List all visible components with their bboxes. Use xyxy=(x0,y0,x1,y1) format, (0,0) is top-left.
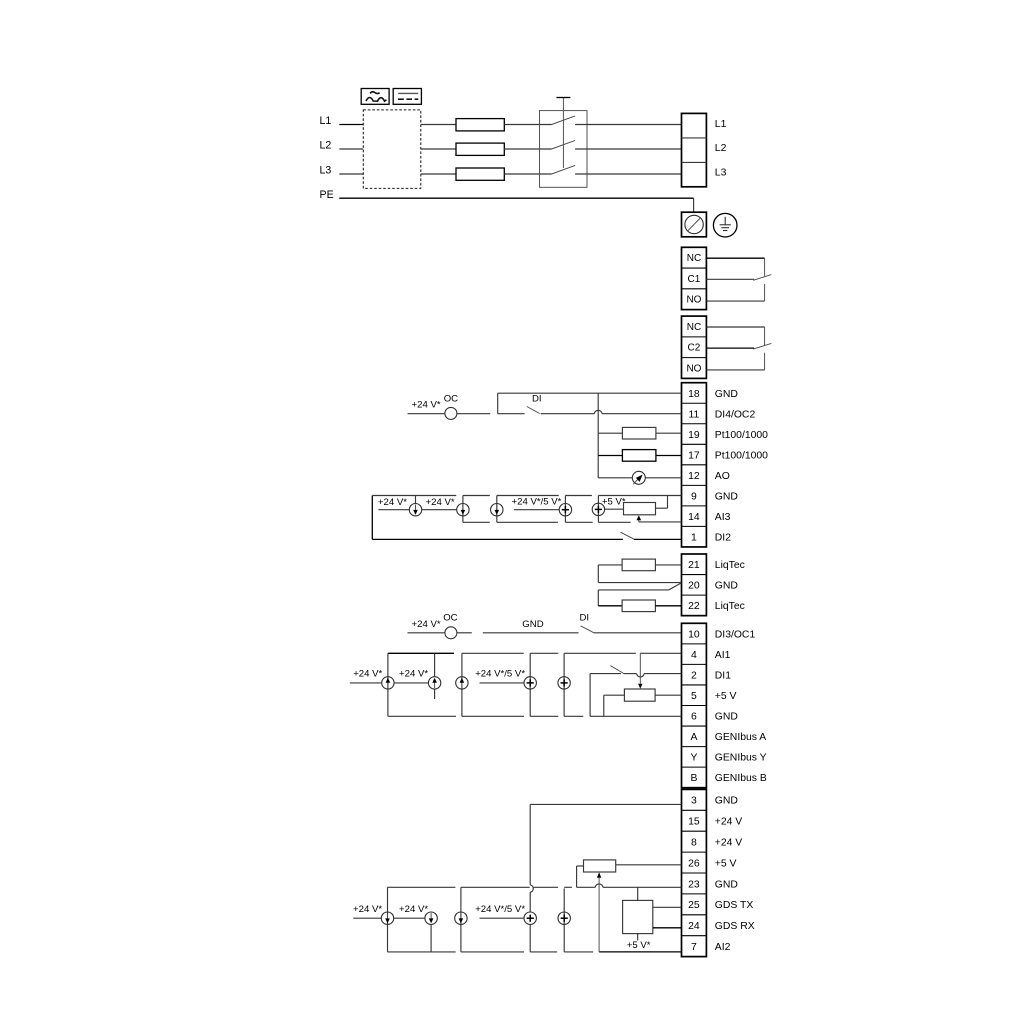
svg-text:+5 V: +5 V xyxy=(715,858,737,869)
svg-text:B: B xyxy=(690,773,697,784)
svg-text:+24 V*: +24 V* xyxy=(399,669,428,680)
svg-text:GND: GND xyxy=(715,581,738,592)
svg-text:DI2: DI2 xyxy=(715,532,731,543)
svg-text:6: 6 xyxy=(691,712,697,723)
svg-text:LiqTec: LiqTec xyxy=(715,560,745,571)
svg-text:8: 8 xyxy=(691,837,697,848)
svg-text:+5 V: +5 V xyxy=(715,691,737,702)
svg-text:GND: GND xyxy=(522,619,543,630)
svg-text:GND: GND xyxy=(715,796,738,807)
svg-text:26: 26 xyxy=(688,858,700,869)
svg-text:1: 1 xyxy=(691,532,697,543)
svg-text:3: 3 xyxy=(691,796,697,807)
svg-text:DI4/OC2: DI4/OC2 xyxy=(715,409,756,420)
svg-text:+24 V*: +24 V* xyxy=(412,400,441,411)
svg-text:18: 18 xyxy=(688,389,700,400)
svg-text:24: 24 xyxy=(688,921,700,932)
svg-text:15: 15 xyxy=(688,817,700,828)
svg-text:NO: NO xyxy=(686,295,701,306)
svg-text:AI1: AI1 xyxy=(715,650,731,661)
svg-text:GND: GND xyxy=(715,389,738,400)
svg-text:L1: L1 xyxy=(320,115,332,127)
svg-text:25: 25 xyxy=(688,900,700,911)
svg-text:L3: L3 xyxy=(715,168,727,179)
svg-text:GDS RX: GDS RX xyxy=(715,921,755,932)
svg-text:+24 V*: +24 V* xyxy=(378,497,407,508)
svg-text:NO: NO xyxy=(686,364,701,375)
svg-text:+24 V*: +24 V* xyxy=(426,497,455,508)
svg-text:AI3: AI3 xyxy=(715,512,731,523)
svg-text:GENIbus A: GENIbus A xyxy=(715,732,766,743)
svg-text:L3: L3 xyxy=(320,165,332,177)
svg-text:4: 4 xyxy=(691,650,697,661)
svg-text:+24 V: +24 V xyxy=(715,837,743,848)
svg-text:DI: DI xyxy=(580,612,590,623)
svg-text:2: 2 xyxy=(691,670,697,681)
svg-text:+24 V*/5 V*: +24 V*/5 V* xyxy=(475,904,525,915)
svg-text:+5 V*: +5 V* xyxy=(627,940,651,951)
svg-text:Y: Y xyxy=(690,753,697,764)
svg-text:+24 V*: +24 V* xyxy=(353,904,382,915)
svg-text:11: 11 xyxy=(689,409,700,420)
svg-text:DI: DI xyxy=(532,393,542,404)
svg-text:GENIbus Y: GENIbus Y xyxy=(715,753,767,764)
svg-text:GND: GND xyxy=(715,712,738,723)
svg-text:20: 20 xyxy=(688,581,700,592)
svg-text:14: 14 xyxy=(688,512,700,523)
svg-text:Pt100/1000: Pt100/1000 xyxy=(715,450,768,461)
svg-text:+24 V*: +24 V* xyxy=(353,669,382,680)
svg-text:12: 12 xyxy=(688,471,700,482)
svg-text:+24 V*: +24 V* xyxy=(412,619,441,630)
svg-text:GND: GND xyxy=(715,879,738,890)
svg-text:+24 V*/5 V*: +24 V*/5 V* xyxy=(512,497,562,508)
svg-text:OC: OC xyxy=(443,612,457,623)
svg-text:LiqTec: LiqTec xyxy=(715,601,745,612)
svg-text:DI1: DI1 xyxy=(715,670,731,681)
svg-text:A: A xyxy=(690,732,697,743)
svg-text:7: 7 xyxy=(691,942,697,953)
svg-text:PE: PE xyxy=(320,189,334,201)
svg-text:10: 10 xyxy=(688,629,700,640)
svg-text:OC: OC xyxy=(444,393,458,404)
svg-text:17: 17 xyxy=(688,450,700,461)
svg-text:AI2: AI2 xyxy=(715,942,731,953)
svg-text:23: 23 xyxy=(688,879,700,890)
svg-text:GND: GND xyxy=(715,491,738,502)
svg-text:NC: NC xyxy=(687,322,701,333)
svg-text:+24 V*: +24 V* xyxy=(399,904,428,915)
svg-text:+5 V*: +5 V* xyxy=(602,496,626,507)
svg-text:L2: L2 xyxy=(715,143,727,154)
svg-text:+24 V*/5 V*: +24 V*/5 V* xyxy=(475,669,525,680)
svg-text:+24 V: +24 V xyxy=(715,817,743,828)
svg-text:NC: NC xyxy=(687,253,701,264)
svg-text:5: 5 xyxy=(691,691,697,702)
svg-text:21: 21 xyxy=(688,560,700,571)
svg-text:19: 19 xyxy=(688,430,700,441)
svg-text:GDS TX: GDS TX xyxy=(715,900,754,911)
svg-text:L2: L2 xyxy=(320,140,332,152)
svg-text:9: 9 xyxy=(691,491,697,502)
svg-text:GENIbus B: GENIbus B xyxy=(715,773,767,784)
svg-text:22: 22 xyxy=(688,601,700,612)
svg-text:C1: C1 xyxy=(688,274,701,285)
svg-text:Pt100/1000: Pt100/1000 xyxy=(715,430,768,441)
svg-text:C2: C2 xyxy=(688,343,701,354)
svg-text:DI3/OC1: DI3/OC1 xyxy=(715,629,756,640)
svg-text:AO: AO xyxy=(715,471,730,482)
svg-text:L1: L1 xyxy=(715,119,727,130)
